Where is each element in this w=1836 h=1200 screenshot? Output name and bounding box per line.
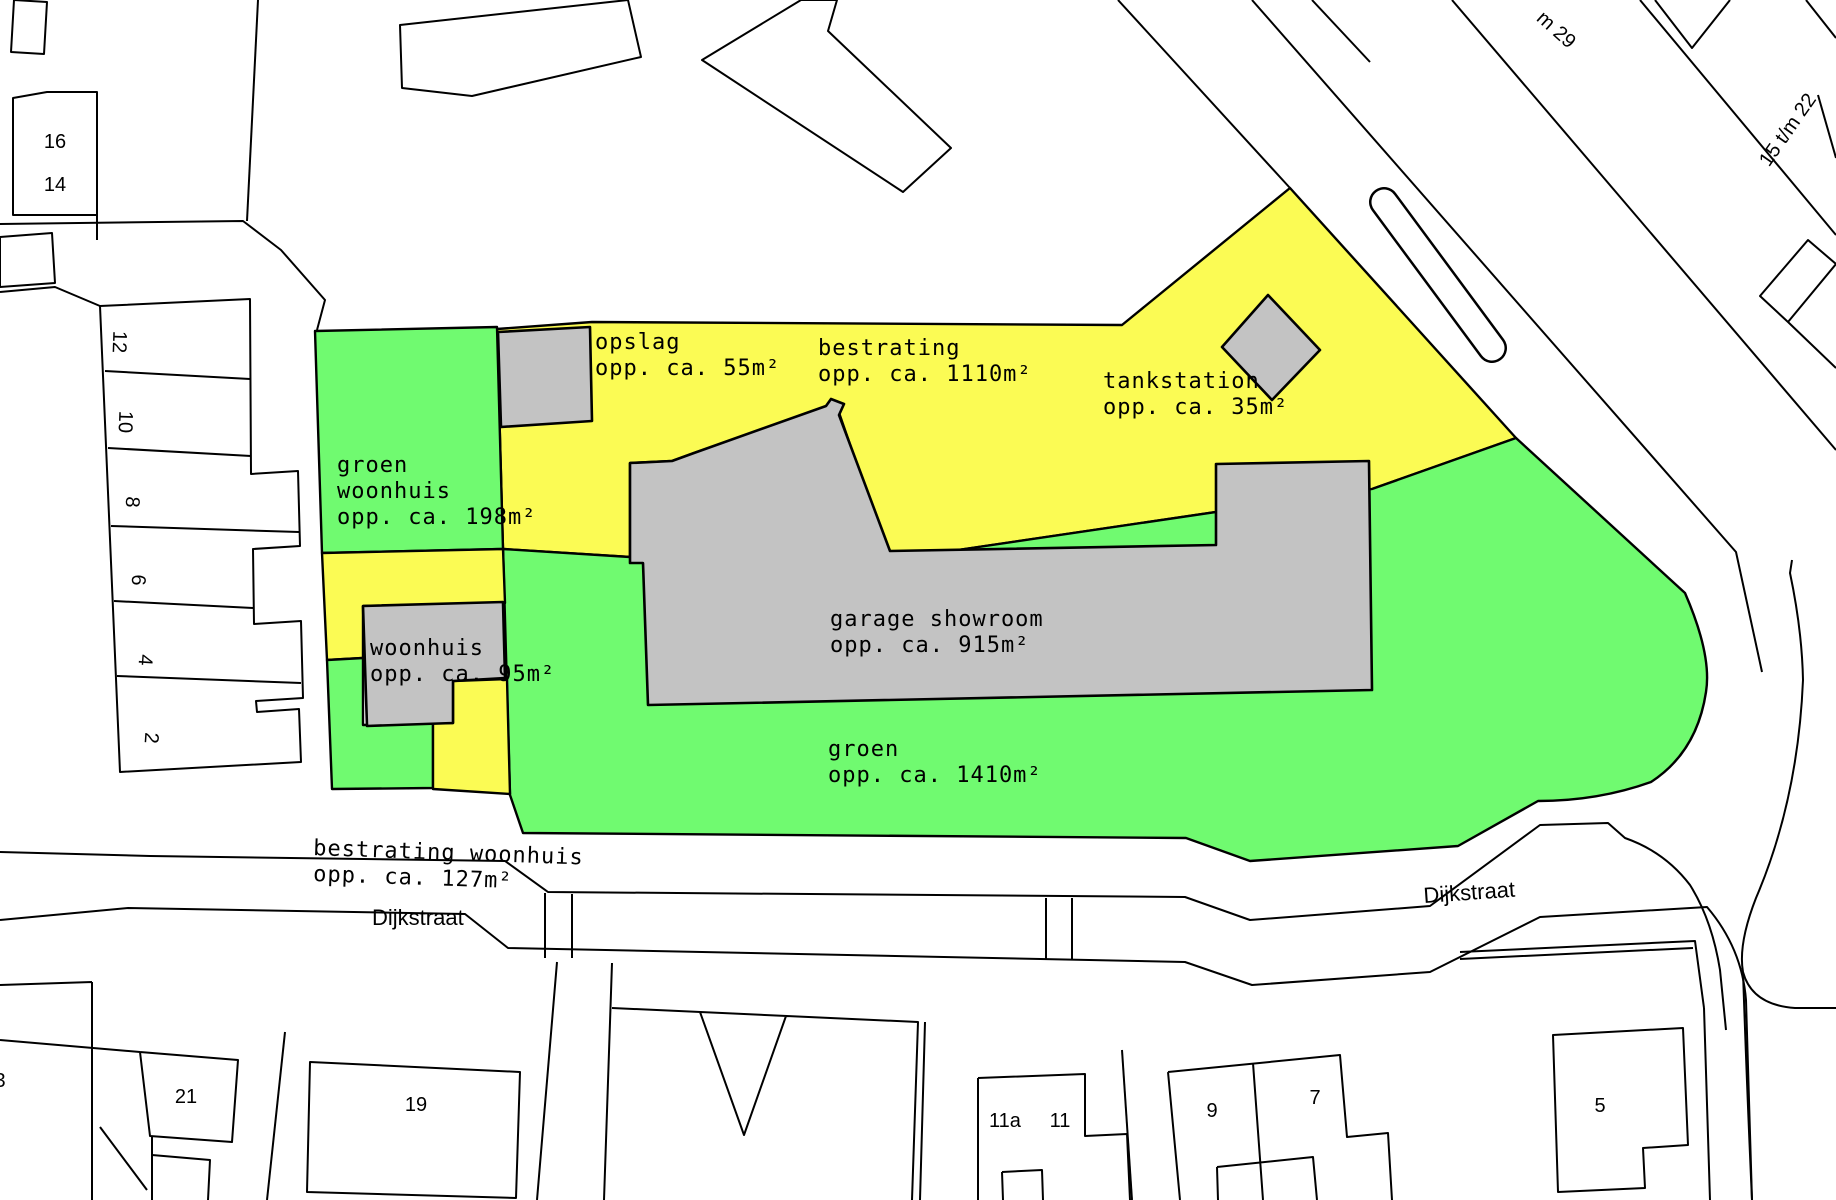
label-groen-woonhuis-area: opp. ca. 198m² (337, 505, 536, 530)
house-number-6: 6 (127, 574, 150, 586)
label-opslag-name: opslag (595, 330, 680, 355)
house-number-10: 10 (114, 410, 137, 433)
house-number-11: 11 (1050, 1110, 1071, 1132)
house-number-21: 21 (175, 1086, 197, 1108)
street-label-dijkstraat-left: Dijkstraat (372, 905, 464, 930)
house-number-14: 14 (44, 174, 66, 196)
house-number-3: 3 (0, 1070, 6, 1092)
opslag-building (498, 327, 592, 427)
label-groen-area: opp. ca. 1410m² (828, 763, 1042, 788)
house-number-5: 5 (1594, 1095, 1605, 1117)
house-number-2: 2 (140, 732, 163, 745)
label-bestrating-name: bestrating (818, 336, 960, 361)
label-groen-woonhuis-line2: woonhuis (337, 479, 451, 504)
cadastral-map: opslag opp. ca. 55m² bestrating opp. ca.… (0, 0, 1836, 1200)
label-groen-woonhuis-line1: groen (337, 453, 408, 478)
house-number-16: 16 (44, 131, 66, 153)
house-number-11a: 11a (989, 1110, 1022, 1132)
house-number-19: 19 (405, 1094, 427, 1116)
house-number-12: 12 (108, 330, 131, 353)
label-woonhuis-name: woonhuis (370, 636, 484, 661)
house-number-9: 9 (1206, 1100, 1217, 1122)
label-tankstation-name: tankstation (1103, 369, 1260, 394)
label-opslag-area: opp. ca. 55m² (595, 356, 780, 381)
label-garage-name: garage showroom (830, 607, 1044, 632)
label-tankstation-area: opp. ca. 35m² (1103, 395, 1288, 420)
house-number-8: 8 (121, 496, 144, 508)
house-number-7: 7 (1309, 1087, 1320, 1109)
label-groen-name: groen (828, 737, 899, 762)
label-garage-area: opp. ca. 915m² (830, 633, 1029, 658)
label-woonhuis-area: opp. ca. 95m² (370, 662, 555, 687)
house-number-4: 4 (134, 654, 157, 667)
label-bestrating-area: opp. ca. 1110m² (818, 362, 1032, 387)
